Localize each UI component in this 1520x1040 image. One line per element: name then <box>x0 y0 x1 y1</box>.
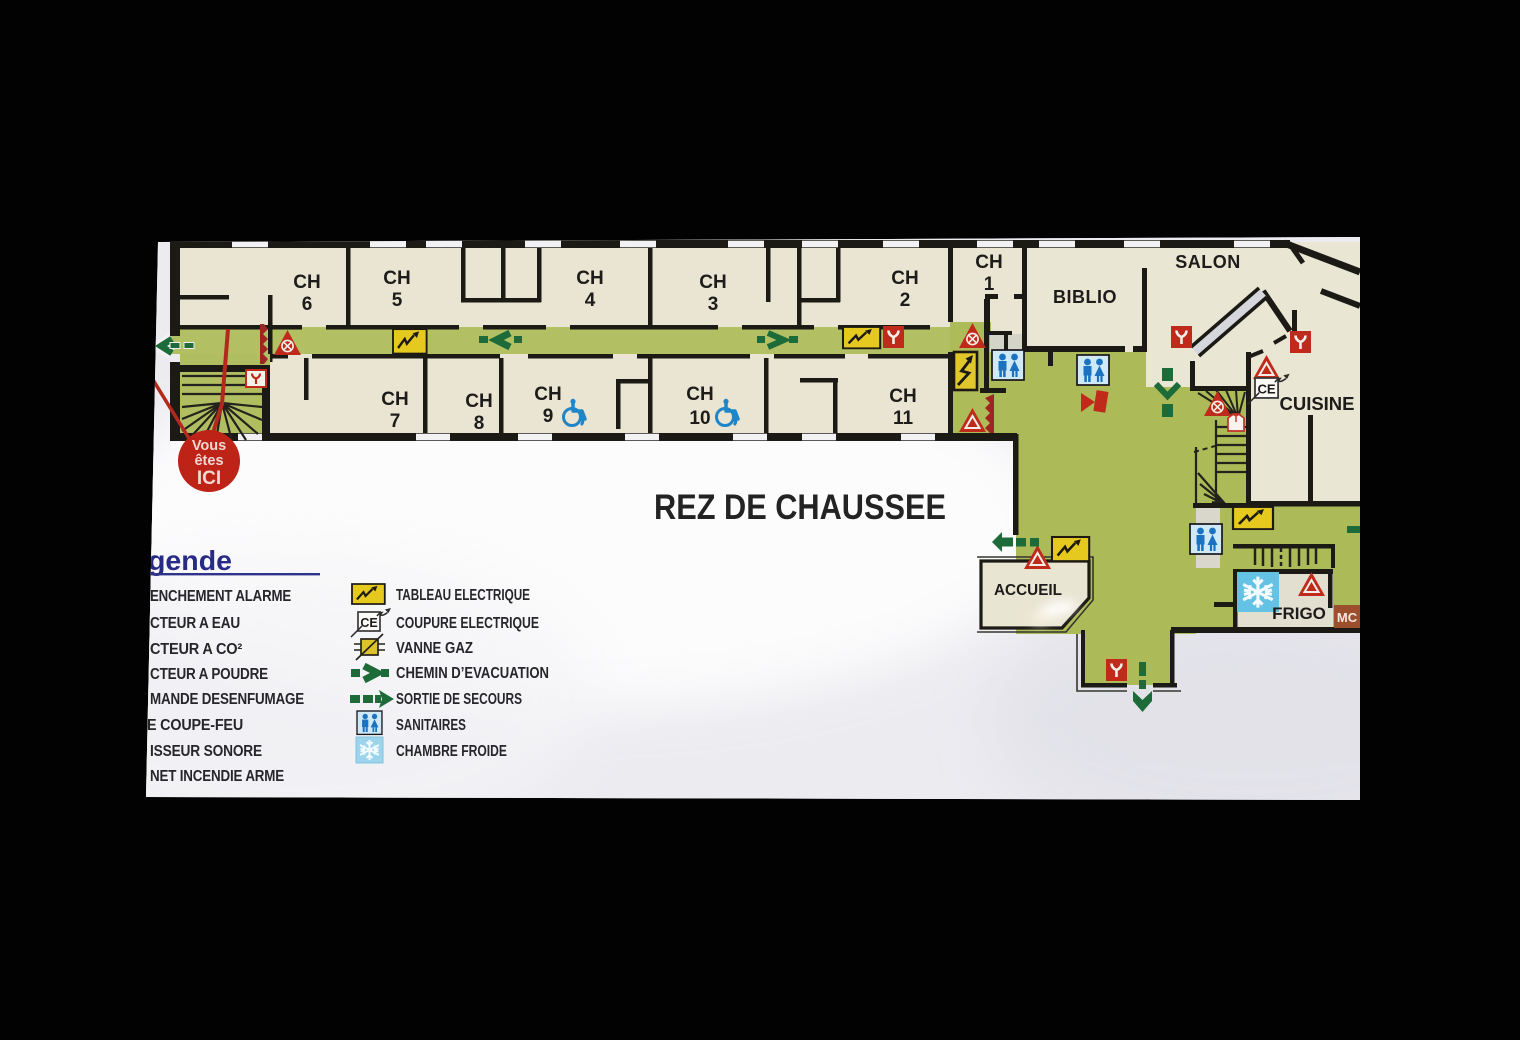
svg-text:CTEUR A EAU: CTEUR A EAU <box>150 615 240 632</box>
svg-text:CTEUR A POUDRE: CTEUR A POUDRE <box>150 666 268 683</box>
svg-text:CH: CH <box>293 272 320 293</box>
svg-text:SORTIE DE SECOURS: SORTIE DE SECOURS <box>396 691 522 708</box>
svg-text:11: 11 <box>893 408 914 429</box>
svg-text:CHEMIN D’EVACUATION: CHEMIN D’EVACUATION <box>396 665 549 682</box>
svg-text:CH: CH <box>381 389 408 410</box>
svg-text:CH: CH <box>891 268 918 289</box>
svg-text:ICI: ICI <box>197 468 221 489</box>
svg-text:VANNE GAZ: VANNE GAZ <box>396 640 473 657</box>
svg-text:CH: CH <box>889 386 916 407</box>
svg-text:SANITAIRES: SANITAIRES <box>396 717 466 734</box>
svg-text:10: 10 <box>689 408 710 429</box>
svg-text:TABLEAU ELECTRIQUE: TABLEAU ELECTRIQUE <box>396 587 530 604</box>
svg-text:4: 4 <box>585 290 596 311</box>
svg-text:CTEUR A CO²: CTEUR A CO² <box>150 641 242 658</box>
svg-text:gende: gende <box>148 545 232 576</box>
svg-text:3: 3 <box>708 294 719 315</box>
svg-text:BIBLIO: BIBLIO <box>1053 287 1117 307</box>
svg-text:6: 6 <box>302 294 313 315</box>
svg-text:ISSEUR SONORE: ISSEUR SONORE <box>150 743 262 760</box>
svg-text:E COUPE-FEU: E COUPE-FEU <box>147 717 243 734</box>
svg-text:Vous: Vous <box>192 438 226 454</box>
svg-text:CH: CH <box>699 272 726 293</box>
svg-text:CH: CH <box>686 384 713 405</box>
svg-text:CUISINE: CUISINE <box>1279 393 1354 414</box>
svg-text:CH: CH <box>465 391 492 412</box>
svg-text:CH: CH <box>383 268 410 289</box>
svg-text:7: 7 <box>390 411 401 432</box>
svg-text:MANDE DESENFUMAGE: MANDE DESENFUMAGE <box>150 691 304 708</box>
svg-text:5: 5 <box>392 290 403 311</box>
svg-text:NET INCENDIE ARME: NET INCENDIE ARME <box>150 768 284 785</box>
svg-text:MC: MC <box>1337 610 1358 625</box>
svg-text:ENCHEMENT ALARME: ENCHEMENT ALARME <box>150 588 291 605</box>
svg-text:ACCUEIL: ACCUEIL <box>994 582 1062 599</box>
svg-text:CHAMBRE FROIDE: CHAMBRE FROIDE <box>396 743 507 760</box>
svg-text:CH: CH <box>975 252 1002 273</box>
svg-text:FRIGO: FRIGO <box>1272 604 1326 623</box>
svg-text:9: 9 <box>543 406 554 427</box>
svg-text:COUPURE ELECTRIQUE: COUPURE ELECTRIQUE <box>396 615 539 632</box>
svg-text:CH: CH <box>576 268 603 289</box>
svg-text:8: 8 <box>474 413 485 434</box>
svg-text:1: 1 <box>984 274 995 295</box>
svg-text:êtes: êtes <box>194 453 223 469</box>
svg-text:REZ DE CHAUSSEE: REZ DE CHAUSSEE <box>654 488 946 527</box>
svg-text:CH: CH <box>534 384 561 405</box>
svg-text:SALON: SALON <box>1175 252 1241 272</box>
svg-text:2: 2 <box>900 290 911 311</box>
